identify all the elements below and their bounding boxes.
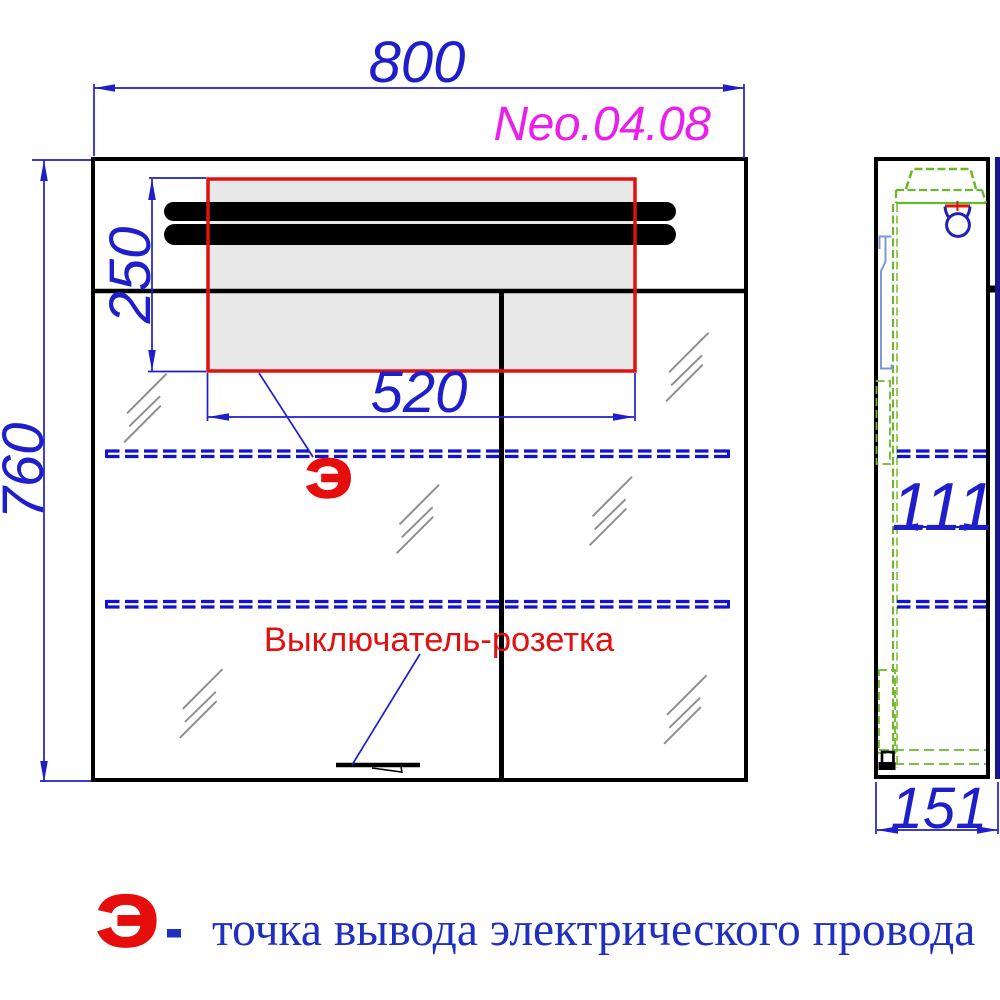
svg-text:760: 760 <box>0 423 56 520</box>
svg-text:Выключатель-розетка: Выключатель-розетка <box>264 621 615 659</box>
svg-text:Neo.04.08: Neo.04.08 <box>493 98 711 151</box>
svg-text:250: 250 <box>98 227 163 325</box>
svg-text:800: 800 <box>369 30 466 95</box>
svg-text:111: 111 <box>891 469 994 545</box>
svg-text:точка вывода электрического пр: точка вывода электрического провода <box>212 904 975 956</box>
svg-text:520: 520 <box>371 360 468 425</box>
svg-text:Э: Э <box>306 448 352 509</box>
svg-text:151: 151 <box>891 776 988 841</box>
svg-text:Э: Э <box>97 881 158 962</box>
